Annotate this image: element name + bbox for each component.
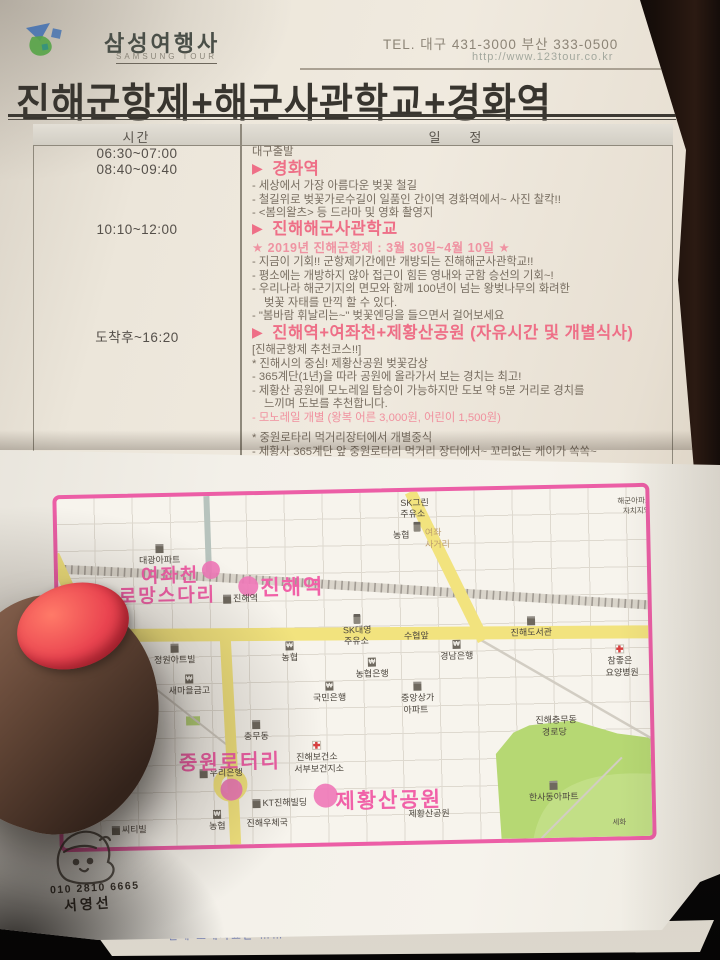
section-line: - 지금이 기회!! 군항제기간에만 개방되는 진해해군사관학교!! xyxy=(252,256,682,270)
map-place-label: 주유소 xyxy=(400,508,425,519)
hosp-icon xyxy=(615,644,624,653)
gas-icon xyxy=(353,614,360,624)
map-place-label: 사거리 xyxy=(425,539,450,550)
map-place-label: 농협 xyxy=(393,530,410,540)
map-place-label: KT진해빌딩 xyxy=(252,797,307,808)
map-highlight-label: 제황산공원 xyxy=(335,783,442,815)
map-place-label-text: 한사동아파트 xyxy=(529,791,579,802)
map-place-label-text: 경남은행 xyxy=(440,651,473,662)
time-cell: 10:10~12:00 xyxy=(36,222,238,237)
time-cell: 06:30~07:00 xyxy=(36,146,238,161)
rotary-label-line2: 로터리 xyxy=(81,632,103,641)
section-line: [진해군항제 추천코스!!] xyxy=(252,344,682,358)
section-header-text: 진해역+여좌천+제황산공원 (자유시간 및 개별식사) xyxy=(272,324,633,342)
map-place-label-text: 진해역 xyxy=(233,593,258,604)
map-place-label-text: 여좌 xyxy=(425,527,442,537)
street-diagonal-1 xyxy=(89,633,237,756)
bank-icon: ₩ xyxy=(185,674,193,683)
jinhae-tour-map: 북원 로터리 대광아파트진해역SK그린주유소농협여좌사거리해군아파트자치지역SK… xyxy=(52,483,656,852)
map-place-label-text: 진해충무동 xyxy=(535,714,577,725)
map-place-label-text: 아파트 xyxy=(403,704,428,715)
bldg-icon xyxy=(549,781,557,790)
map-place-label-text: KT진해빌딩 xyxy=(262,797,307,808)
column-header-detail: 일 정 xyxy=(240,127,670,146)
map-place-label: 농협은행 xyxy=(355,668,388,679)
map-place-label-text: SK그린 xyxy=(400,497,429,508)
website-url: http://www.123tour.co.kr xyxy=(472,51,613,63)
photo-of-travel-itinerary: 삼성여행사 SAMSUNG TOUR TEL. 대구 431-3000 부산 3… xyxy=(0,0,720,960)
bank-icon: ₩ xyxy=(452,640,460,649)
bank-icon: ₩ xyxy=(325,681,333,690)
play-icon: ▶ xyxy=(252,321,263,343)
bldg-icon xyxy=(155,544,163,553)
hand-drawn-character-stamp-icon xyxy=(52,826,122,888)
phone-numbers: TEL. 대구 431-3000 부산 333-0500 xyxy=(383,33,618,53)
section-line: - 365계단(1년)을 따라 공원에 올라가서 보는 경치는 최고! xyxy=(252,371,682,385)
map-place-label-text: 참좋은 xyxy=(607,655,632,666)
bldg-icon xyxy=(170,644,178,653)
map-highlight-label: 진해역 xyxy=(260,571,325,602)
map-place-label-text: 주유소 xyxy=(344,636,369,647)
map-place-label: 한사동아파트 xyxy=(529,791,579,802)
time-cell: 08:40~09:40 xyxy=(36,162,238,177)
map-place-label: 서부보건지소 xyxy=(294,763,344,774)
map-highlight-label: 중원로터리 xyxy=(179,745,282,776)
map-place-label: 진해보건소 xyxy=(296,751,338,762)
map-place-label: 경로당 xyxy=(542,727,567,738)
section-line: - 세상에서 가장 아름다운 벚꽃 철길 xyxy=(252,180,682,194)
map-place-label: 해군아파트 xyxy=(617,496,652,507)
bank-icon: ₩ xyxy=(213,810,221,819)
map-place-label-text: 수협앞 xyxy=(404,630,429,641)
section-header: ▶진해역+여좌천+제황산공원 (자유시간 및 개별식사) xyxy=(252,322,682,344)
map-place-label: 농협 xyxy=(281,652,298,662)
map-place-label-text: 세화 xyxy=(612,817,626,827)
map-place-label-text: 주유소 xyxy=(400,508,425,519)
map-place-label: 아파트 xyxy=(403,704,428,715)
map-place-label: 정원아트빌 xyxy=(154,654,196,665)
map-place-label: 진해도서관 xyxy=(510,627,552,638)
bldg-icon xyxy=(413,682,421,691)
map-place-label-text: 진해도서관 xyxy=(510,627,552,638)
time-cell: 도착후~16:20 xyxy=(36,326,238,346)
map-place-label-text: 새마을금고 xyxy=(169,685,211,696)
section-line: - 평소에는 개방하지 않아 접근이 힘든 영내와 군함 승선의 기회~! xyxy=(252,270,682,284)
section-line: - 우리나라 해군기지의 면모와 함께 100년이 넘는 왕벚나무의 화려한 xyxy=(252,283,682,297)
map-place-label-text: SK대영 xyxy=(343,625,372,636)
map-place-label-text: 농협 xyxy=(209,821,226,831)
sheet-edge-shadow xyxy=(0,430,720,450)
south-road xyxy=(225,641,235,845)
map-place-label: 요양병원 xyxy=(605,667,638,678)
map-place-label-text: 자치지역 xyxy=(623,506,651,517)
map-place-label-text: 농협 xyxy=(281,652,298,662)
bldg-icon xyxy=(252,720,260,729)
title-underline xyxy=(8,114,676,117)
map-place-label: 참좋은 xyxy=(607,655,632,666)
bldg-icon xyxy=(252,798,260,807)
column-header-time: 시간 xyxy=(33,127,240,146)
play-icon: ▶ xyxy=(252,217,263,239)
map-place-label-text: 진해보건소 xyxy=(296,751,338,762)
map-place-label: 농협 xyxy=(209,821,226,831)
section-line: - 제황산 공원에 모노레일 탑승이 가능하지만 도보 약 5분 거리로 경치를 xyxy=(252,385,682,399)
map-place-label: 세화 xyxy=(612,817,626,827)
bldg-icon xyxy=(527,616,535,625)
map-place-label-text: 씨티빌 xyxy=(122,824,147,835)
section-line: ★ 2019년 진해군항제 : 3월 30일~4월 10일 ★ xyxy=(252,240,682,256)
section-line: * 진해시의 중심! 제황산공원 벚꽃감상 xyxy=(252,358,682,372)
section-header-text: 경화역 xyxy=(272,160,319,178)
map-place-label: SK그린 xyxy=(400,497,429,508)
map-place-label: 국민은행 xyxy=(313,692,346,703)
bank-icon: ₩ xyxy=(368,658,376,667)
handwritten-name: 서영선 xyxy=(63,892,112,915)
section-line: 느끼며 도보를 추천합니다. xyxy=(252,398,682,412)
map-place-label-text: 진해우체국 xyxy=(246,817,288,828)
map-place-label-text: 서부보건지소 xyxy=(294,763,344,774)
schedule-section: ▶진해해군사관학교★ 2019년 진해군항제 : 3월 30일~4월 10일 ★… xyxy=(252,218,682,324)
section-header: ▶경화역 xyxy=(252,158,682,180)
rotary-label-line1: 북원 xyxy=(84,622,99,631)
schedule-section: ▶경화역- 세상에서 가장 아름다운 벚꽃 철길- 철길위로 벚꽃가로수길이 일… xyxy=(252,158,682,221)
table-column-divider xyxy=(240,124,242,470)
map-place-label-text: 해군아파트 xyxy=(617,496,652,507)
section-header: ▶진해해군사관학교 xyxy=(252,218,682,240)
section-line: - 철길위로 벚꽃가로수길이 일품인 간이역 경화역에서~ 사진 찰칵!! xyxy=(252,194,682,208)
section-line: - 모노레일 개별 (왕복 어른 3,000원, 어린이 1,500원) xyxy=(252,412,682,426)
bank-icon: ₩ xyxy=(285,641,293,650)
map-place-label-text: 중앙상가 xyxy=(401,692,434,703)
map-place-label: 진해우체국 xyxy=(246,817,288,828)
map-place-label: 진해역 xyxy=(223,593,258,604)
map-place-label: 충무동 xyxy=(244,731,269,742)
map-place-label-text: 농협 xyxy=(393,530,410,540)
section-header-text: 진해해군사관학교 xyxy=(272,220,397,238)
map-place-label-text: 사거리 xyxy=(425,539,450,550)
map-place-label: SK대영 xyxy=(343,625,372,636)
map-place-label: 주유소 xyxy=(344,636,369,647)
map-place-label: 여좌 xyxy=(425,527,442,537)
hosp-icon xyxy=(312,741,321,750)
map-place-label-text: 경로당 xyxy=(542,727,567,738)
map-place-label: 중앙상가 xyxy=(401,692,434,703)
gas-icon xyxy=(413,522,420,532)
map-place-label: 수협앞 xyxy=(404,630,429,641)
title-underline-2 xyxy=(8,119,676,120)
map-place-label: 경남은행 xyxy=(440,651,473,662)
map-place-label: 자치지역 xyxy=(623,506,651,517)
section-line: 벚꽃 자태를 만끽 할 수 있다. xyxy=(252,297,682,311)
samsung-tour-logo-icon xyxy=(12,20,100,66)
map-place-label-text: 정원아트빌 xyxy=(154,654,196,665)
itinerary-sheet: 삼성여행사 SAMSUNG TOUR TEL. 대구 431-3000 부산 3… xyxy=(0,0,720,472)
map-place-label-text: 농협은행 xyxy=(355,668,388,679)
play-icon: ▶ xyxy=(252,157,263,179)
map-place-label-text: 국민은행 xyxy=(313,692,346,703)
map-place-label-text: 요양병원 xyxy=(605,667,638,678)
map-highlight-label: 로망스다리 xyxy=(118,580,216,609)
brand-subtitle: SAMSUNG TOUR xyxy=(116,52,217,64)
bldg-icon xyxy=(223,594,231,603)
map-place-label: 새마을금고 xyxy=(169,685,211,696)
map-place-label: 진해충무동 xyxy=(535,714,577,725)
map-place-label-text: 충무동 xyxy=(244,731,269,742)
